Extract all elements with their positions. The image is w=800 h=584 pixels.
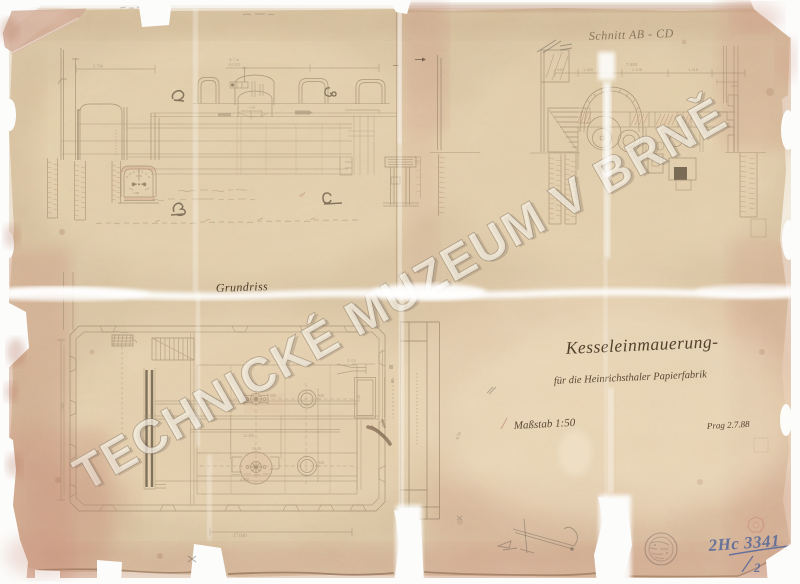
svg-text:17.040: 17.040 — [233, 534, 247, 539]
svg-text:4.880: 4.880 — [240, 477, 249, 482]
svg-text:1.04: 1.04 — [249, 106, 255, 110]
svg-text:12.300: 12.300 — [243, 433, 254, 438]
svg-text:2: 2 — [753, 560, 761, 575]
svg-text:7.580: 7.580 — [626, 62, 638, 67]
svg-text:3.700: 3.700 — [93, 64, 104, 69]
svg-text:2.105: 2.105 — [632, 67, 643, 72]
svg-text:10.30: 10.30 — [252, 446, 261, 451]
svg-text:4.7 m: 4.7 m — [229, 57, 240, 62]
svg-text:5.115: 5.115 — [347, 358, 356, 363]
svg-text:Schnitt AB - CD: Schnitt AB - CD — [589, 26, 674, 43]
svg-text:1.345: 1.345 — [583, 67, 594, 72]
svg-text:1.315: 1.315 — [688, 67, 699, 72]
svg-text:7.580: 7.580 — [60, 403, 65, 412]
svg-text:1.50: 1.50 — [356, 395, 361, 402]
svg-text:940: 940 — [318, 393, 324, 398]
svg-text:940: 940 — [318, 460, 324, 465]
svg-text:1.00: 1.00 — [133, 191, 139, 195]
svg-text:945: 945 — [557, 67, 564, 72]
svg-text:10.515: 10.515 — [228, 62, 241, 67]
